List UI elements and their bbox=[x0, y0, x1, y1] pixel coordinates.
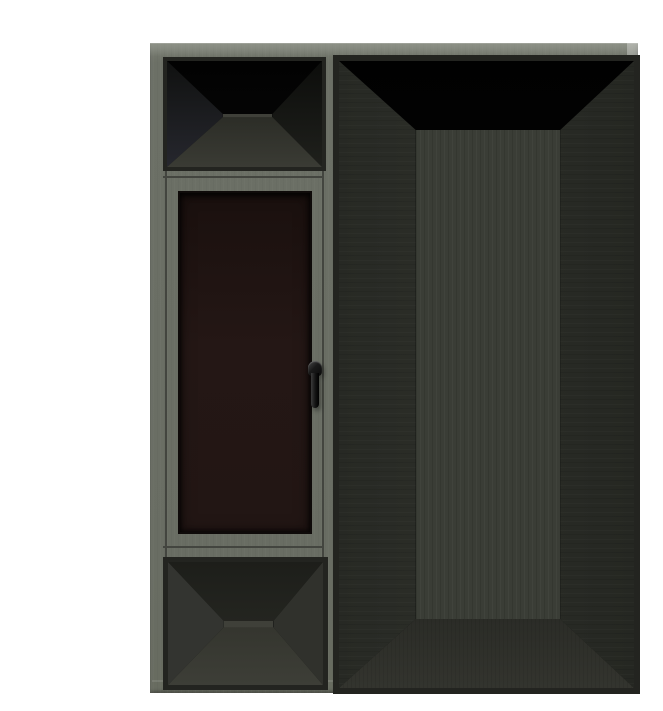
sash-groove-right bbox=[322, 167, 324, 557]
sash-groove-top bbox=[163, 176, 322, 178]
sash-groove-bottom bbox=[163, 546, 322, 548]
window-glass bbox=[178, 191, 312, 534]
door-interior bbox=[339, 61, 634, 688]
bottom-panel-interior bbox=[168, 562, 323, 685]
window-door-assembly bbox=[150, 43, 638, 693]
bottom-panel-opening bbox=[163, 557, 328, 690]
transom-interior bbox=[167, 61, 322, 167]
door-back-wall-face bbox=[416, 130, 561, 619]
sash-groove-left bbox=[165, 167, 167, 557]
transom-opening bbox=[163, 57, 326, 171]
window-handle bbox=[308, 361, 322, 408]
handle-bar bbox=[311, 373, 319, 408]
page-background bbox=[0, 0, 663, 711]
door-opening bbox=[333, 55, 640, 694]
